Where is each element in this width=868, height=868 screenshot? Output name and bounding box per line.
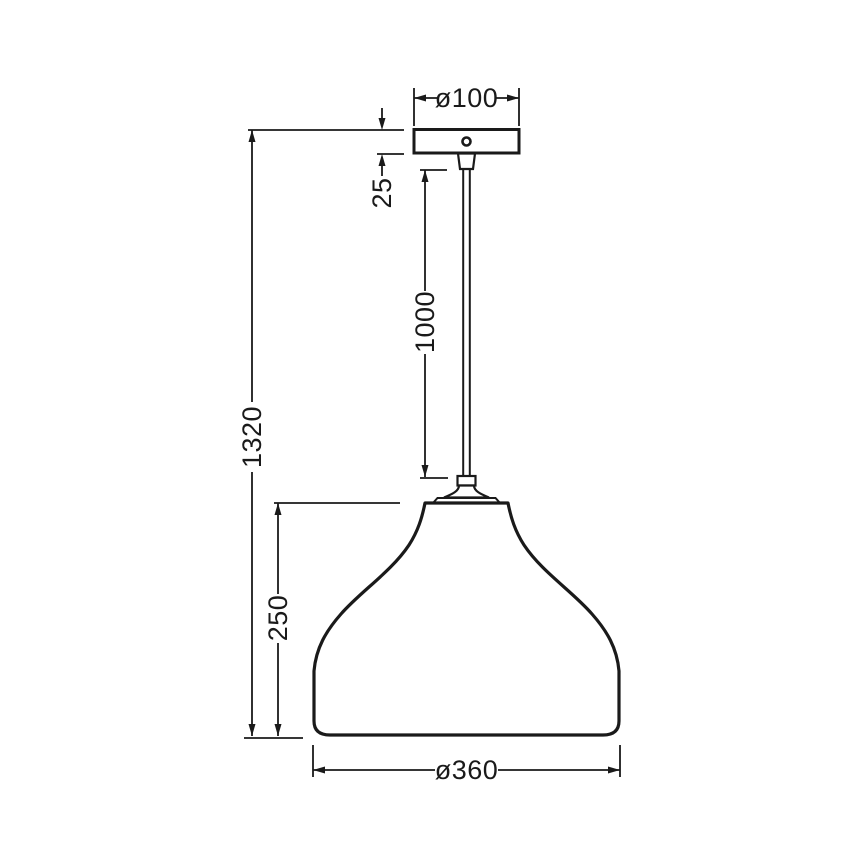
dim-shade-diameter: ø360 <box>313 745 620 785</box>
suspension-cord <box>463 169 470 477</box>
arrow-down-icon <box>249 724 256 736</box>
technical-drawing-page: ø100 25 1000 13 <box>0 0 868 868</box>
pendant-lamp-drawing: ø100 25 1000 13 <box>0 0 868 868</box>
arrow-down-icon <box>422 465 429 477</box>
arrow-down-icon <box>379 118 386 130</box>
arrow-up-icon <box>379 154 386 166</box>
dim-shade-height-label: 250 <box>263 595 293 642</box>
arrow-up-icon <box>249 130 256 142</box>
dim-canopy-height: 25 <box>367 108 404 209</box>
dim-total-height-label: 1320 <box>237 406 267 468</box>
arrow-left-icon <box>414 95 426 102</box>
canopy-strain-relief <box>458 154 475 170</box>
dim-cord-length: 1000 <box>410 170 448 478</box>
arrow-up-icon <box>275 503 282 515</box>
lamp-shade-outline <box>314 503 619 735</box>
dim-canopy-height-label: 25 <box>367 177 397 208</box>
arrow-right-icon <box>507 95 519 102</box>
arrow-down-icon <box>275 724 282 736</box>
canopy-screw-hole <box>463 138 471 146</box>
dim-canopy-diameter-label: ø100 <box>435 83 499 113</box>
arrow-right-icon <box>608 767 620 774</box>
dim-shade-diameter-label: ø360 <box>435 755 499 785</box>
arrow-left-icon <box>313 767 325 774</box>
arrow-up-icon <box>422 170 429 182</box>
socket-trumpet <box>444 486 489 498</box>
socket-fitting <box>433 476 500 503</box>
ceiling-canopy <box>414 130 519 170</box>
dim-canopy-diameter: ø100 <box>414 83 519 126</box>
dim-cord-length-label: 1000 <box>410 291 440 353</box>
socket-cap <box>458 476 476 486</box>
